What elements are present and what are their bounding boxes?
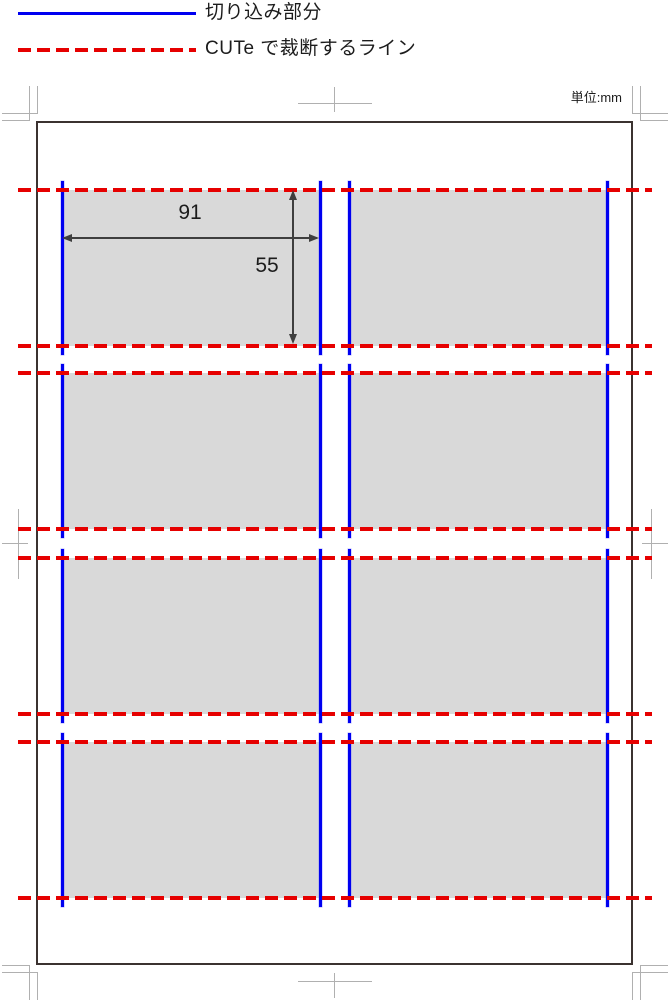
trim-mark <box>641 120 668 121</box>
notch-cut-line <box>319 364 322 538</box>
unit-label: 単位:mm <box>520 90 622 105</box>
cut-line-bottom <box>18 527 652 531</box>
notch-cut-line <box>348 364 351 538</box>
width-dimension-line <box>64 237 317 239</box>
notch-cut-line <box>319 181 322 355</box>
card-placeholder <box>62 373 320 529</box>
height-arrowhead-top-icon <box>289 190 297 200</box>
cut-line-top <box>18 188 652 192</box>
trim-mark <box>651 509 652 579</box>
trim-mark <box>2 972 37 973</box>
trim-mark <box>633 972 668 973</box>
notch-cut-line <box>61 733 64 907</box>
trim-mark <box>640 965 641 1000</box>
legend-cut-label: CUTe で裁断するライン <box>205 38 416 60</box>
cut-line-bottom <box>18 712 652 716</box>
trim-mark <box>37 86 38 114</box>
legend-notch-label: 切り込み部分 <box>205 2 322 24</box>
height-dimension-line <box>292 194 294 340</box>
trim-mark <box>641 965 668 966</box>
notch-cut-line <box>61 364 64 538</box>
notch-cut-line <box>61 181 64 355</box>
trim-mark <box>18 509 19 579</box>
cut-line-top <box>18 740 652 744</box>
cut-line-bottom <box>18 344 652 348</box>
cut-line-bottom <box>18 896 652 900</box>
notch-cut-line <box>606 549 609 723</box>
notch-cut-line <box>319 549 322 723</box>
trim-mark <box>632 972 633 1000</box>
trim-mark <box>2 965 29 966</box>
trim-mark <box>29 965 30 1000</box>
card-placeholder <box>349 558 607 714</box>
legend-cut-line-sample <box>18 48 196 52</box>
cutting-layout-diagram: 切り込み部分 CUTe で裁断するライン 単位:mm 91 55 <box>0 0 670 1002</box>
notch-cut-line <box>348 733 351 907</box>
card-placeholder <box>349 190 607 346</box>
legend-notch-line-sample <box>18 12 196 15</box>
cut-line-top <box>18 556 652 560</box>
trim-mark <box>2 120 29 121</box>
trim-mark <box>298 981 372 982</box>
card-placeholder <box>349 742 607 898</box>
trim-mark <box>29 86 30 121</box>
width-dimension-value: 91 <box>160 201 220 225</box>
trim-mark <box>642 543 668 544</box>
card-placeholder <box>62 558 320 714</box>
trim-mark <box>334 973 335 998</box>
card-placeholder <box>62 742 320 898</box>
trim-mark <box>298 103 372 104</box>
notch-cut-line <box>348 181 351 355</box>
height-arrowhead-bottom-icon <box>289 334 297 344</box>
notch-cut-line <box>606 181 609 355</box>
notch-cut-line <box>606 733 609 907</box>
trim-mark <box>633 113 668 114</box>
width-arrowhead-left-icon <box>62 234 72 242</box>
trim-mark <box>2 113 37 114</box>
trim-mark <box>334 87 335 112</box>
cut-line-top <box>18 371 652 375</box>
height-dimension-value: 55 <box>246 254 288 278</box>
notch-cut-line <box>348 549 351 723</box>
notch-cut-line <box>606 364 609 538</box>
card-placeholder <box>349 373 607 529</box>
trim-mark <box>2 543 28 544</box>
notch-cut-line <box>61 549 64 723</box>
trim-mark <box>640 86 641 121</box>
width-arrowhead-right-icon <box>309 234 319 242</box>
trim-mark <box>37 972 38 1000</box>
notch-cut-line <box>319 733 322 907</box>
trim-mark <box>632 86 633 114</box>
